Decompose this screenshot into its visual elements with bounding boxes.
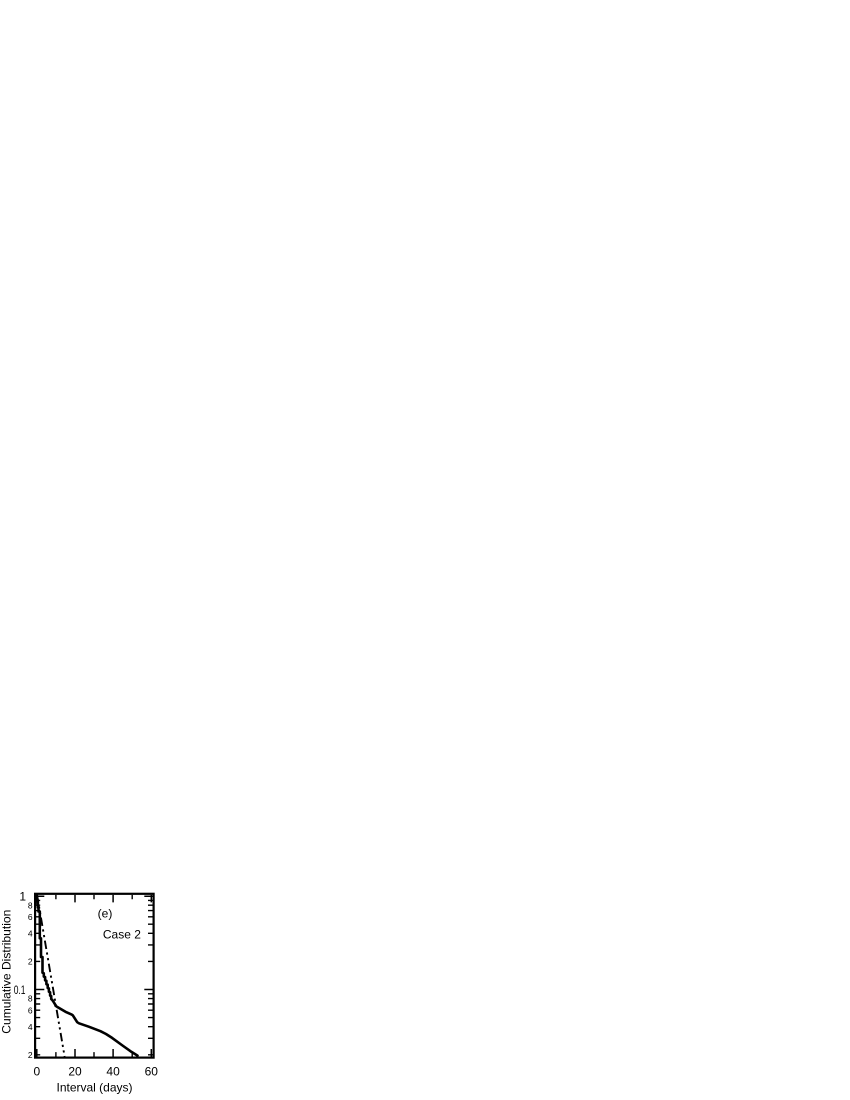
svg-text:0: 0 <box>33 1064 40 1078</box>
svg-text:4: 4 <box>28 1022 33 1032</box>
svg-text:6: 6 <box>28 912 33 922</box>
svg-text:8: 8 <box>28 994 33 1004</box>
svg-text:2: 2 <box>28 957 33 967</box>
svg-text:40: 40 <box>106 1064 120 1078</box>
svg-text:(e): (e) <box>98 907 113 921</box>
svg-text:6: 6 <box>28 1005 33 1015</box>
svg-text:Case 2: Case 2 <box>103 928 141 942</box>
svg-text:8: 8 <box>28 900 33 910</box>
svg-text:1: 1 <box>19 889 26 903</box>
svg-text:Cumulative Distribution: Cumulative Distribution <box>0 910 14 1034</box>
svg-text:4: 4 <box>28 928 33 938</box>
svg-text:20: 20 <box>68 1064 82 1078</box>
svg-text:60: 60 <box>145 1064 159 1078</box>
svg-text:Interval (days): Interval (days) <box>56 1080 132 1094</box>
svg-text:2: 2 <box>28 1050 33 1060</box>
svg-text:0.1: 0.1 <box>14 983 26 997</box>
